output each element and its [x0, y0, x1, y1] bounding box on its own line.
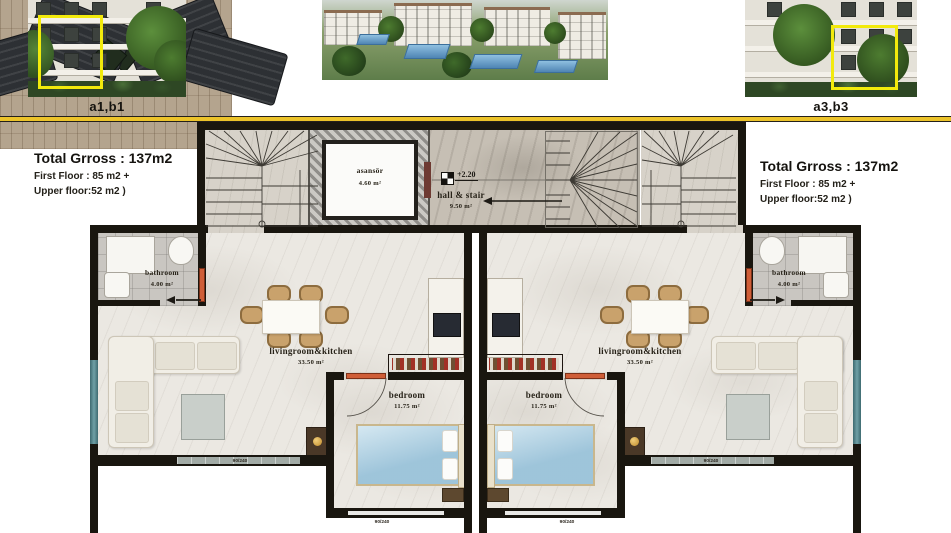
building-render-center: [322, 0, 608, 80]
cooktop: [433, 313, 461, 337]
cooktop: [492, 313, 520, 337]
room-label-living-right: livingroom&kitchen: [598, 346, 681, 356]
area-info-left: Total Grross : 137m2 First Floor : 85 m2…: [34, 150, 172, 199]
thumb-label-a1b1: a1,b1: [28, 99, 186, 114]
wall: [617, 372, 625, 518]
bathroom-door-left: [199, 268, 205, 302]
room-label-living-left: livingroom&kitchen: [269, 346, 352, 356]
room-label-hall: hall & stair: [437, 190, 485, 200]
room-label-bathroom-left: bathroom: [145, 268, 179, 277]
lamp-icon: [630, 437, 639, 446]
room-label-elevator: asansör: [357, 166, 384, 175]
wall: [90, 225, 205, 233]
dresser: [442, 488, 464, 502]
pool-decor: [534, 60, 578, 73]
window-decor: [841, 2, 856, 17]
window-decor: [897, 2, 912, 17]
pillow: [442, 458, 458, 480]
floorplan-sheet: a1,b1 a3,b3 Tot: [0, 0, 951, 533]
wall: [98, 300, 160, 306]
sofa-cushion: [197, 342, 237, 370]
bathroom-door-right: [746, 268, 752, 302]
coffee-table: [726, 394, 770, 440]
stair-room-right: [641, 130, 738, 225]
building-render-right: [745, 0, 917, 97]
party-wall: [464, 230, 472, 533]
elevator-door: [424, 162, 431, 198]
sofa-cushion: [155, 342, 195, 370]
dining-table: [262, 300, 320, 334]
room-area-elevator: 4.60 m²: [359, 180, 381, 187]
wardrobe-right: [485, 354, 563, 374]
building-block-decor: [394, 3, 472, 46]
pillow: [497, 458, 513, 480]
bed-right: [487, 424, 595, 486]
window-dimension-label: 90/240: [375, 520, 390, 525]
coffee-table: [181, 394, 225, 440]
room-area-bathroom-left: 4.00 m²: [151, 281, 173, 288]
dining-chair: [240, 306, 264, 324]
area-info-right: Total Grross : 137m2 First Floor : 85 m2…: [760, 158, 898, 207]
door-opening: [687, 225, 743, 233]
bedroom-door-right: [565, 373, 605, 379]
wall: [746, 225, 861, 233]
door-dimension-label: 90/240: [704, 459, 719, 464]
sofa-cushion: [804, 381, 838, 411]
pool-decor: [356, 34, 390, 45]
room-label-bedroom-right: bedroom: [526, 390, 562, 400]
building-render-left: [28, 0, 186, 97]
kitchen-counter-right: [487, 278, 523, 358]
palm-tree-icon: [773, 4, 835, 66]
room-area-hall: 9.50 m²: [450, 203, 472, 210]
window-glass: [348, 511, 444, 515]
side-window: [90, 360, 98, 444]
wall: [197, 122, 205, 225]
wardrobe-left: [388, 354, 466, 374]
room-area-bedroom-left: 11.75 m²: [394, 403, 420, 410]
level-value: +2.20: [455, 170, 478, 181]
room-label-bathroom-right: bathroom: [772, 268, 806, 277]
tree-decor: [332, 46, 366, 76]
level-marker-icon: [441, 172, 454, 185]
sofa-chaise: [108, 336, 154, 448]
toilet: [168, 236, 194, 265]
nightstand: [306, 427, 328, 457]
window-decor: [869, 2, 884, 17]
headboard: [487, 424, 495, 488]
pillow: [442, 430, 458, 452]
window-dimension-label: 90/240: [560, 520, 575, 525]
door-dimension-label: 90/240: [233, 459, 248, 464]
window-glass: [505, 511, 601, 515]
sofa-cushion: [115, 381, 149, 411]
wall: [791, 300, 853, 306]
dining-chair: [325, 306, 349, 324]
sofa-chaise: [797, 336, 843, 448]
stair-room-left: [205, 130, 320, 225]
first-floor-line: First Floor : 85 m2 +: [760, 177, 898, 192]
bedroom-door-left: [346, 373, 386, 379]
unit-highlight-box: [38, 15, 103, 89]
kitchen-counter-left: [428, 278, 464, 358]
building-block-decor: [484, 7, 550, 46]
dining-table: [631, 300, 689, 334]
room-label-bedroom-left: bedroom: [389, 390, 425, 400]
pool-decor: [470, 54, 523, 69]
wall: [197, 122, 746, 130]
sink: [104, 272, 130, 298]
wall: [738, 122, 746, 225]
room-area-living-right: 33.50 m²: [627, 359, 653, 366]
door-opening: [208, 225, 264, 233]
party-wall: [479, 230, 487, 533]
nightstand: [623, 427, 645, 457]
pillow: [497, 430, 513, 452]
unit-highlight-box: [831, 25, 898, 90]
toilet: [759, 236, 785, 265]
tree-decor: [470, 18, 494, 42]
sofa-cushion: [716, 342, 756, 370]
sofa-cushion: [804, 413, 838, 443]
dining-chair: [600, 306, 624, 324]
wall: [326, 372, 334, 518]
stair-divider: [636, 130, 640, 225]
sofa-cushion: [115, 413, 149, 443]
side-window: [853, 360, 861, 444]
tree-decor: [544, 22, 566, 44]
thumb-label-a3b3: a3,b3: [745, 99, 917, 114]
bed-left: [356, 424, 464, 486]
upper-floor-line: Upper floor:52 m2 ): [760, 192, 898, 207]
sink: [823, 272, 849, 298]
total-gross-title: Total Grross : 137m2: [34, 150, 172, 166]
upper-floor-line: Upper floor:52 m2 ): [34, 184, 172, 199]
first-floor-line: First Floor : 85 m2 +: [34, 169, 172, 184]
sofa-cushion: [758, 342, 798, 370]
room-area-bedroom-right: 11.75 m²: [531, 403, 557, 410]
room-area-living-left: 33.50 m²: [298, 359, 324, 366]
total-gross-title: Total Grross : 137m2: [760, 158, 898, 174]
lamp-icon: [313, 437, 322, 446]
dresser: [487, 488, 509, 502]
pool-decor: [404, 44, 451, 59]
room-area-bathroom-right: 4.00 m²: [778, 281, 800, 288]
